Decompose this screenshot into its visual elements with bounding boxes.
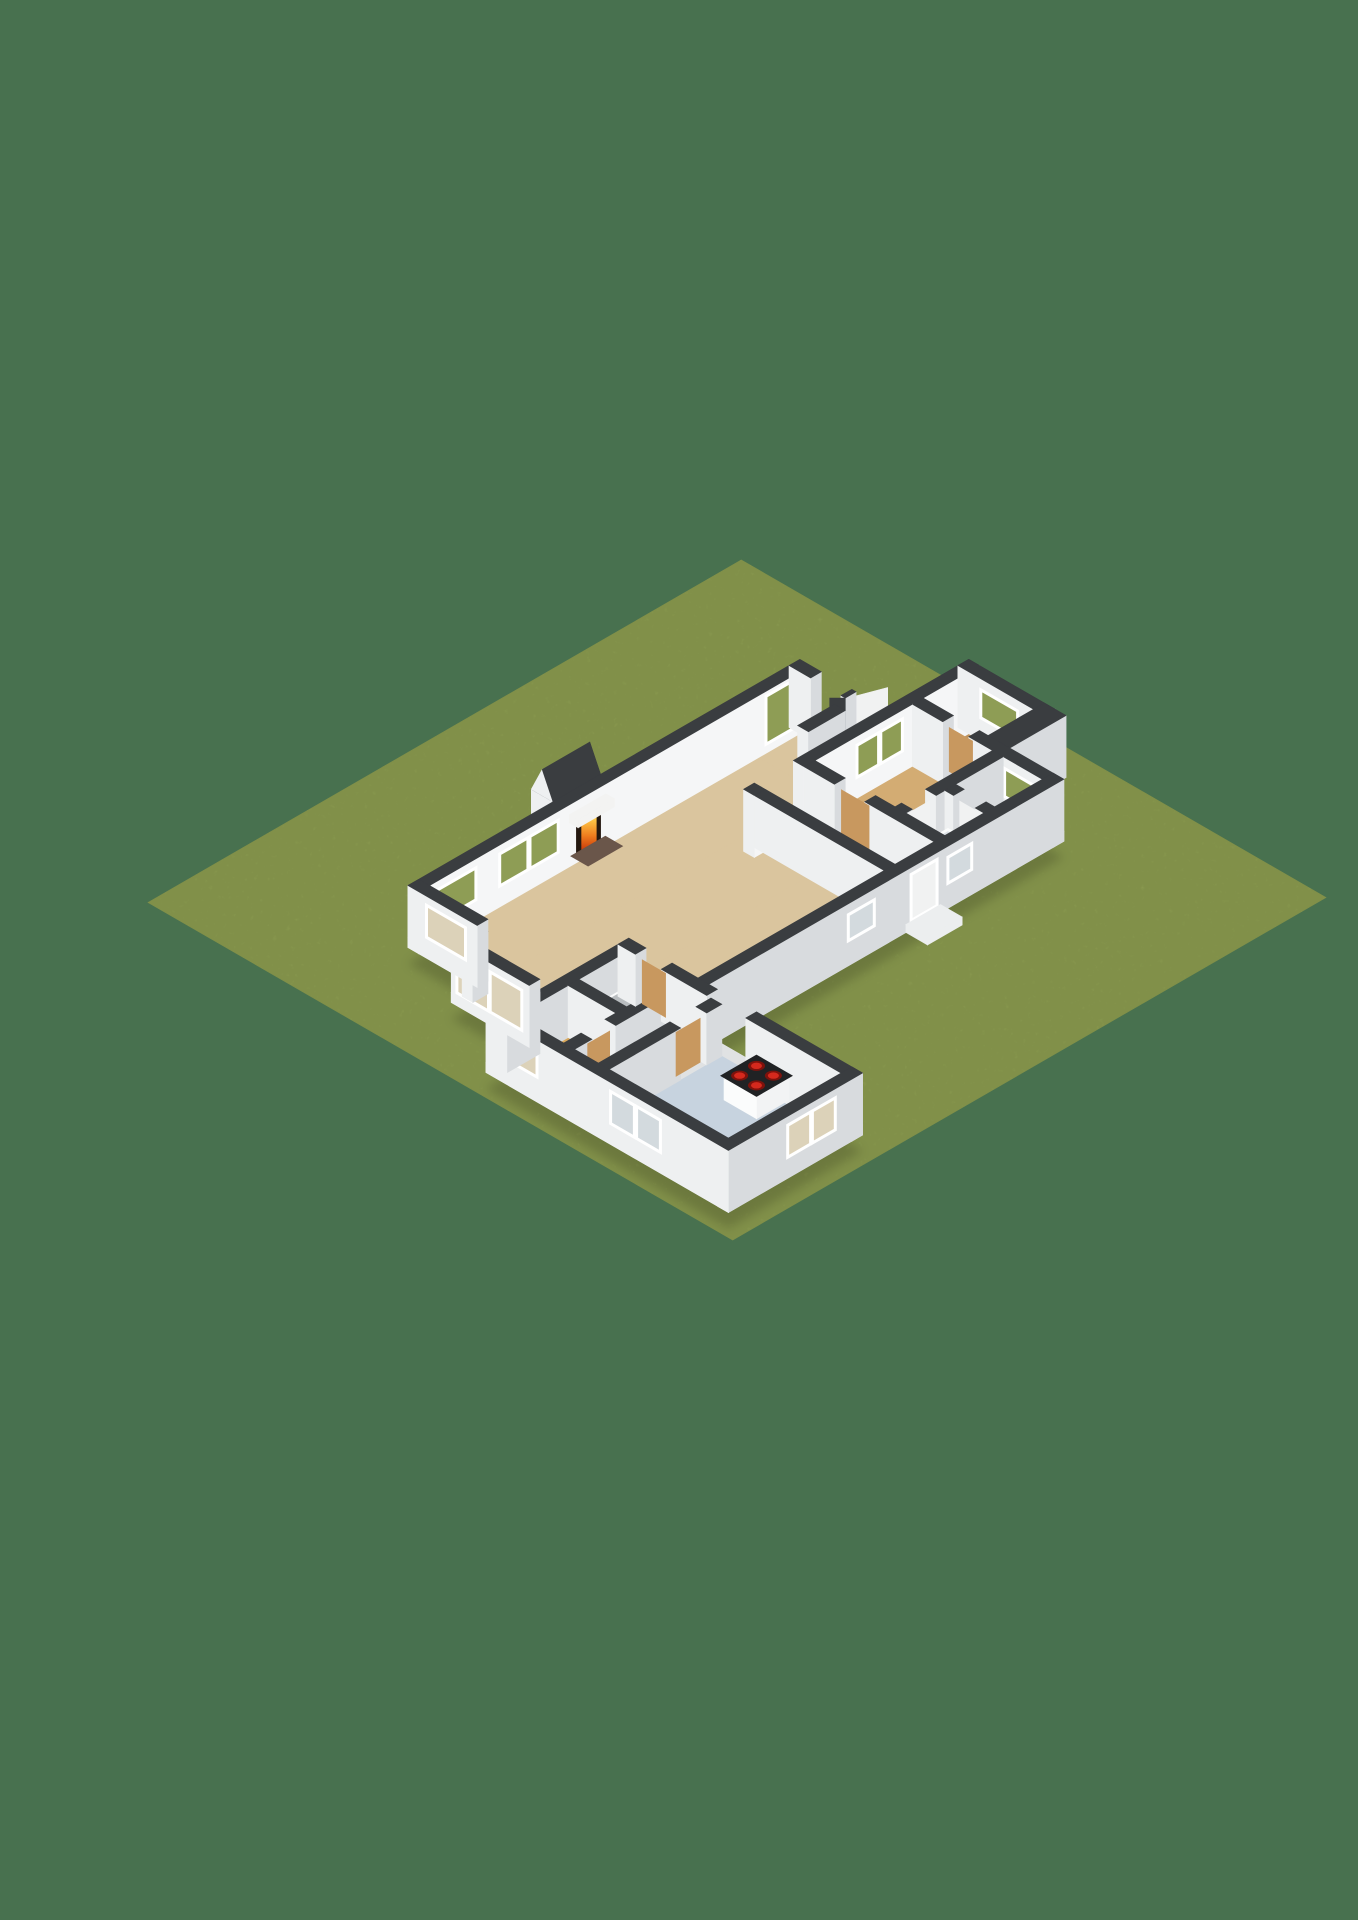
- stove-burner-coil: [734, 1072, 745, 1078]
- face: [728, 1144, 739, 1212]
- face: [707, 1004, 722, 1065]
- face: [744, 789, 755, 857]
- stove-burner-coil: [751, 1063, 762, 1069]
- floorplan-3d-scene: [0, 0, 1358, 1920]
- face: [618, 944, 635, 1006]
- world-group: [148, 560, 1326, 1240]
- face: [529, 979, 540, 1047]
- disc-shape: [751, 1082, 762, 1088]
- disc-shape: [751, 1063, 762, 1069]
- scene-background: [0, 0, 1358, 1920]
- disc-shape: [768, 1072, 779, 1078]
- face: [477, 919, 488, 987]
- stove-burner-coil: [768, 1072, 779, 1078]
- wall-kitchen-ne: [618, 938, 646, 1006]
- disc-shape: [734, 1072, 745, 1078]
- stove-burner-coil: [751, 1082, 762, 1088]
